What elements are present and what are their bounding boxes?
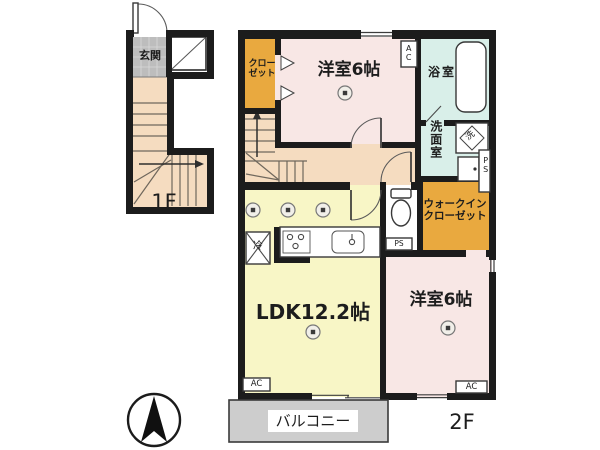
floor2-label: 2F	[440, 410, 484, 434]
kitchen-counter	[280, 227, 380, 257]
compass-north-arrow	[128, 394, 180, 446]
bath-label: 浴室	[420, 66, 464, 80]
ldk-floor	[243, 185, 383, 397]
ac-top-label: AC	[404, 44, 413, 65]
window-top-bedroom	[361, 33, 392, 37]
closet-label-line1: クロー	[243, 59, 281, 69]
toilet	[391, 189, 411, 226]
pendant-light-icon	[246, 203, 260, 217]
floor1-label: 1F	[143, 190, 185, 214]
vanity-unit	[458, 157, 479, 181]
pendant-light-icon	[281, 203, 295, 217]
fridge-label: 冷	[246, 241, 270, 253]
bedroom-top-label: 洋室6帖	[299, 61, 399, 81]
shoe-cabinet	[171, 37, 206, 70]
balcony-label: バルコニー	[268, 413, 358, 430]
pendant-light-icon	[316, 203, 330, 217]
stair-hall-floor	[133, 77, 167, 207]
ldk-label: LDK12.2帖	[243, 301, 383, 324]
bedroom-right-floor	[383, 250, 492, 397]
closet-label-line2: ゼット	[243, 69, 281, 79]
floor1-plan	[126, 3, 214, 214]
entrance-label: 玄関	[133, 50, 167, 63]
ps-washroom-label: PS	[481, 156, 490, 187]
ceiling-light-icon	[306, 325, 320, 339]
entrance-door-arc	[133, 3, 167, 33]
bedroom-right-label: 洋室6帖	[391, 291, 491, 311]
washroom-label: 洗面室	[428, 120, 442, 182]
wic-label-line2: クローゼット	[421, 210, 489, 222]
window-bedroom-right-side	[491, 260, 494, 272]
ac-bedroom-label: AC	[456, 383, 487, 393]
ps-toilet-label: PS	[386, 240, 412, 249]
ceiling-light-icon	[441, 321, 455, 335]
floorplan-image: 玄関 1F クロー ゼット 洋室6帖 浴室 洗面室 AC 洗 PS PS ウォー…	[0, 0, 600, 450]
hallway-floor	[275, 144, 421, 188]
ac-ldk-label: AC	[243, 380, 270, 390]
wic-label-line1: ウォークイン	[421, 198, 489, 210]
ceiling-light-icon	[338, 86, 352, 100]
